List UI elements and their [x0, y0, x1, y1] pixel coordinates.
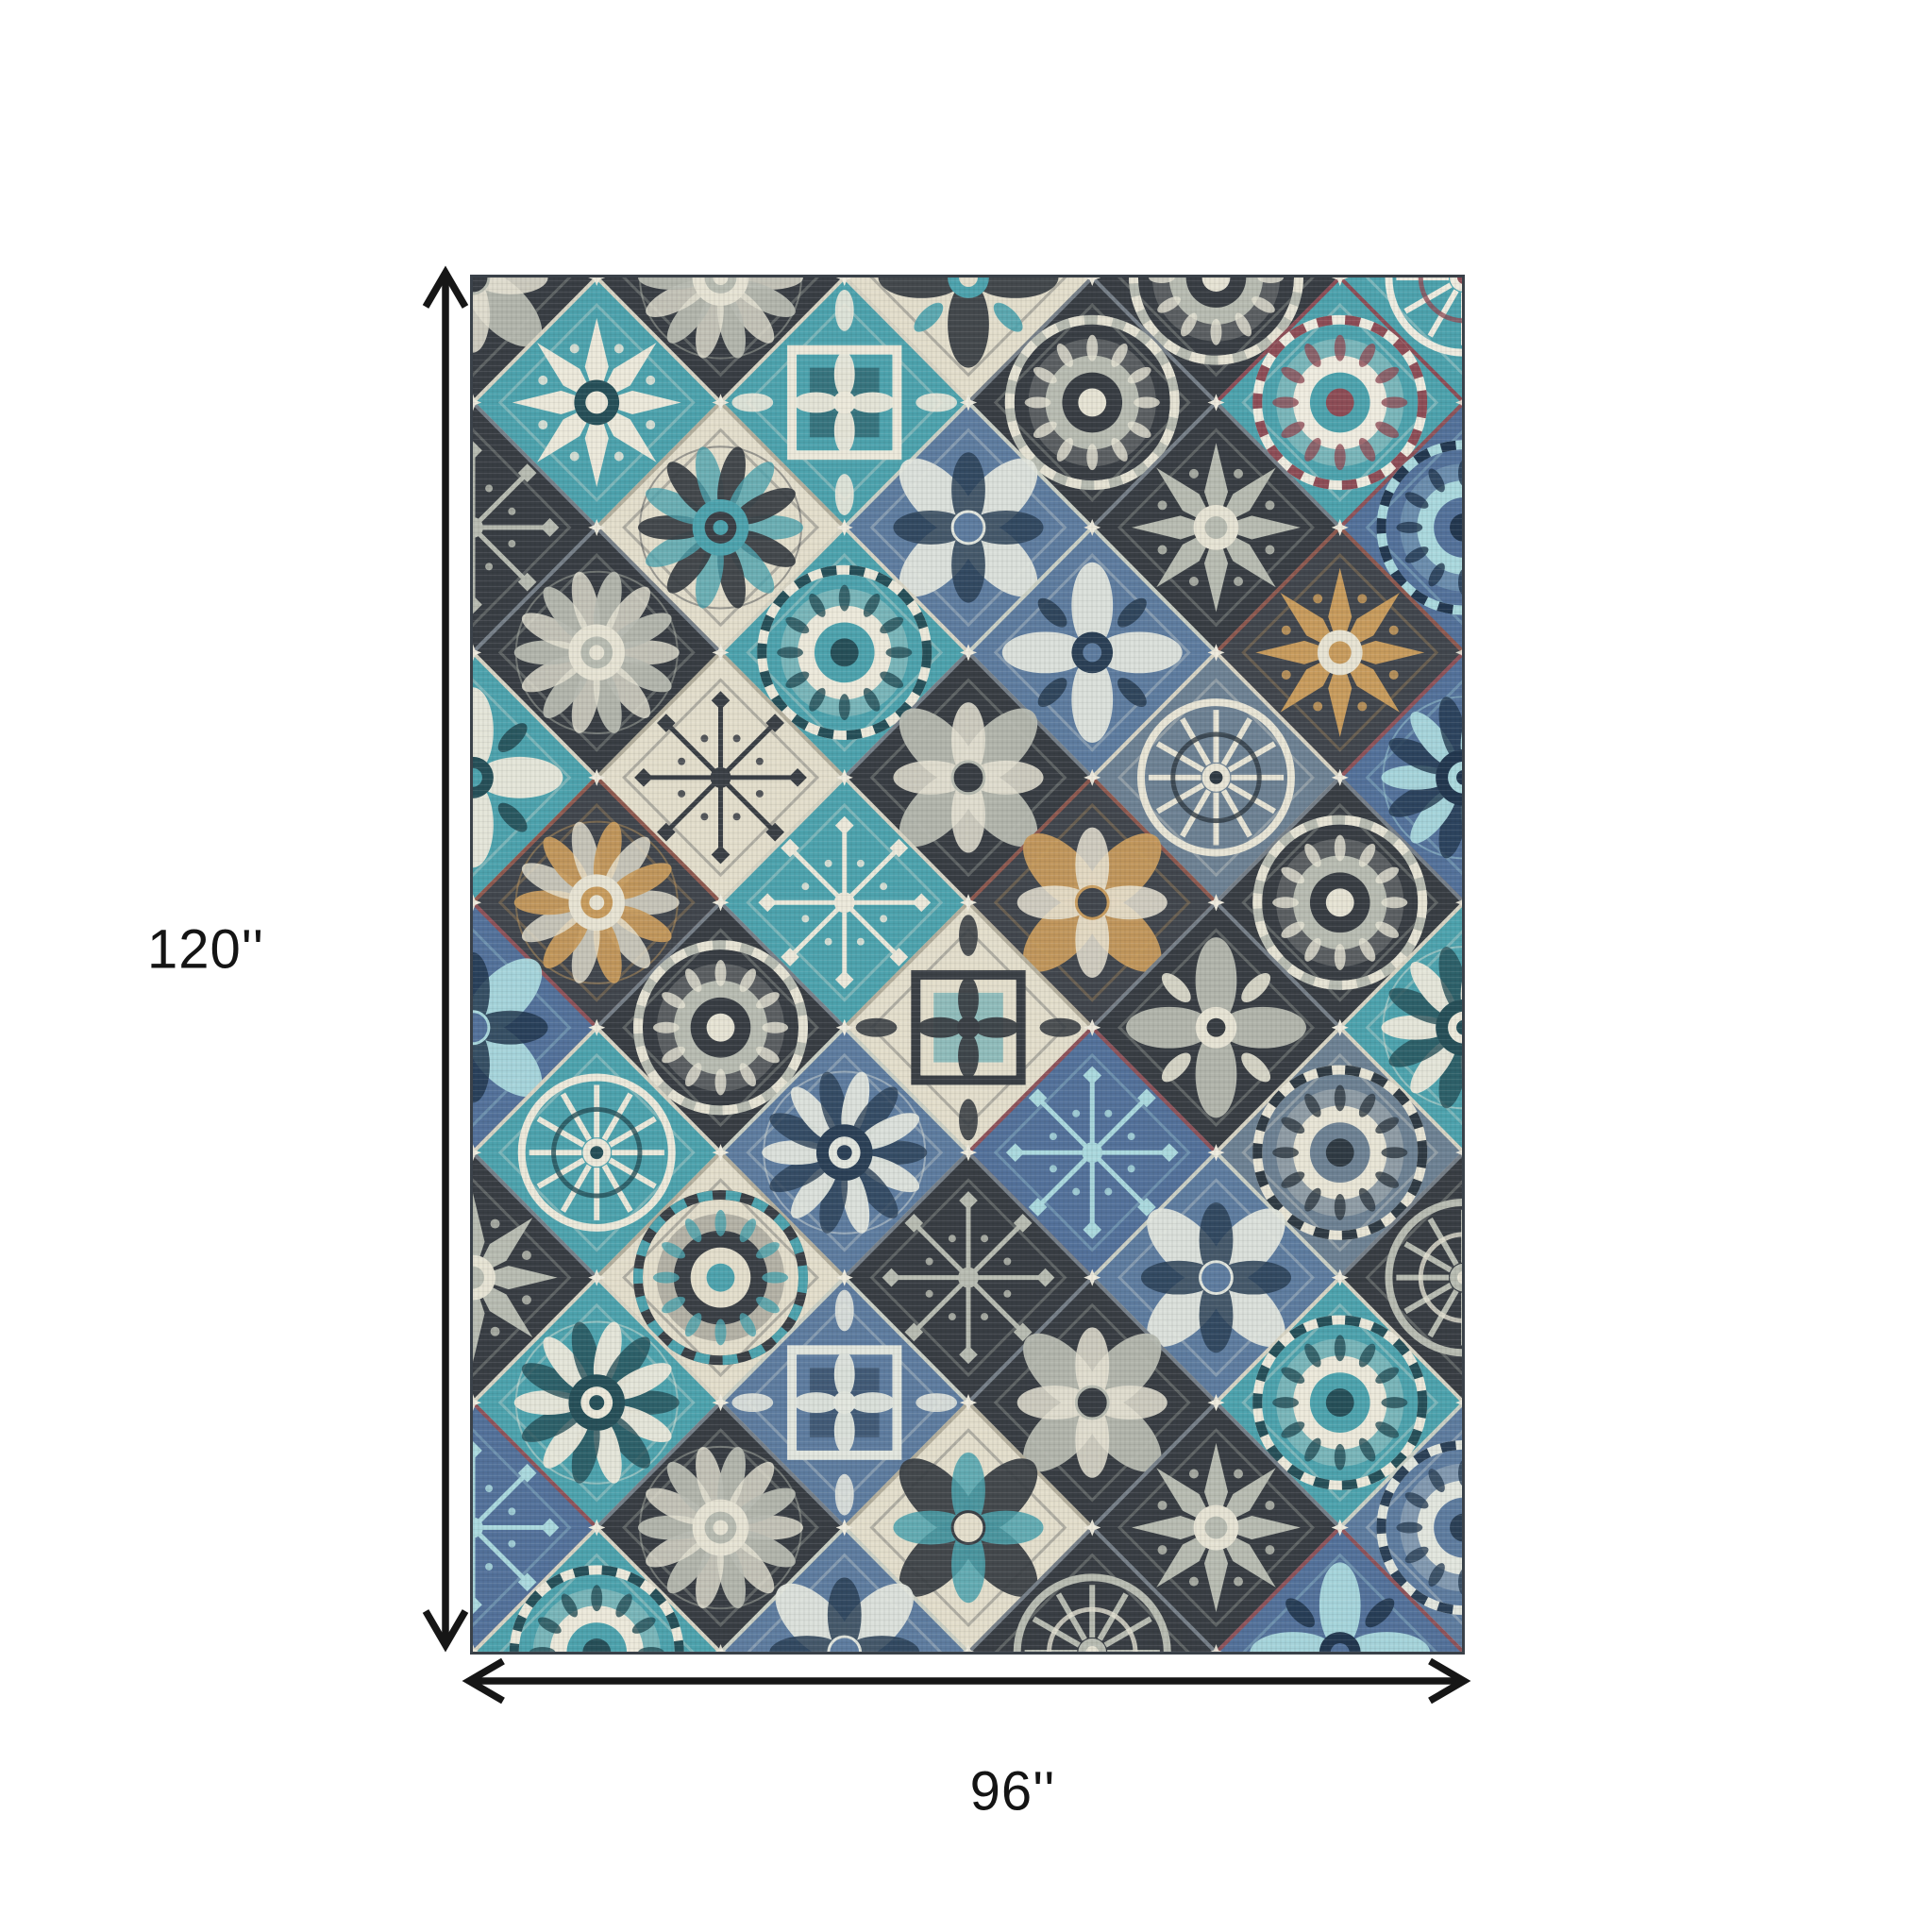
height-dimension-label: 120''	[147, 918, 264, 982]
rug-pattern	[473, 277, 1462, 1652]
rug-image	[470, 275, 1465, 1655]
vertical-dimension-arrow-icon	[419, 260, 472, 1657]
width-dimension-label: 96''	[970, 1760, 1056, 1823]
product-dimension-diagram: 120'' 96''	[0, 0, 1932, 1932]
horizontal-dimension-arrow-icon	[457, 1655, 1476, 1707]
